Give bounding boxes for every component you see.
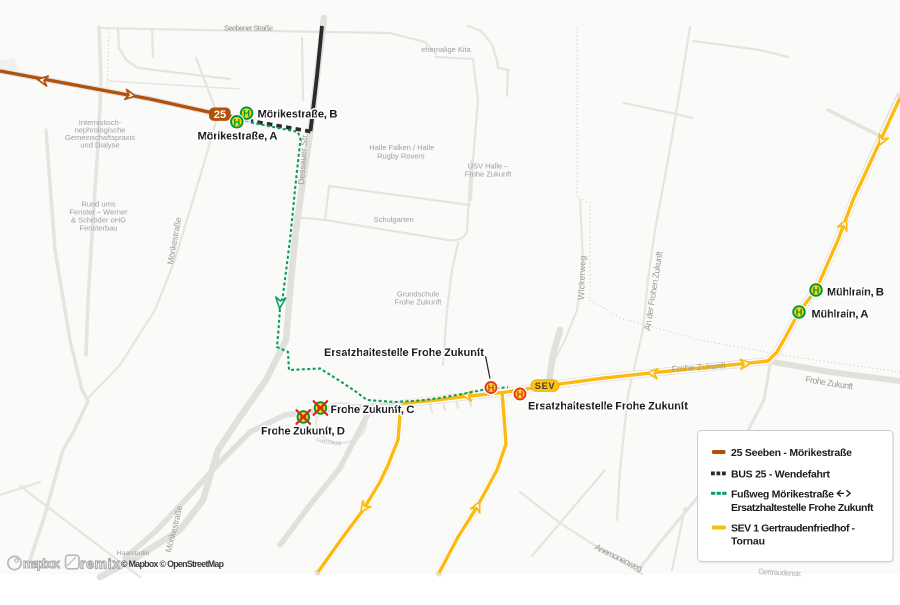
svg-text:Wickerweg: Wickerweg xyxy=(576,256,588,301)
svg-text:H: H xyxy=(813,286,820,297)
svg-text:SEV: SEV xyxy=(535,381,556,391)
svg-text:© Mapbox © OpenStreetMap: © Mapbox © OpenStreetMap xyxy=(121,559,225,569)
svg-text:25: 25 xyxy=(214,109,226,121)
svg-text:remix: remix xyxy=(80,556,120,572)
svg-text:25 Seeben - Mörikestraße: 25 Seeben - Mörikestraße xyxy=(731,447,852,459)
svg-text:Tornau: Tornau xyxy=(731,536,765,548)
svg-text:Mühlrain, A: Mühlrain, A xyxy=(812,309,869,321)
svg-text:Mörikestraße, A: Mörikestraße, A xyxy=(198,131,278,143)
svg-text:Ersatzhaltestelle Frohe Zukunf: Ersatzhaltestelle Frohe Zukunft xyxy=(324,347,484,359)
svg-text:Seebener Straße: Seebener Straße xyxy=(224,24,273,33)
svg-text:BUS 25 - Wendefahrt: BUS 25 - Wendefahrt xyxy=(731,468,831,480)
svg-text:Frohe Zukunft, D: Frohe Zukunft, D xyxy=(261,426,345,438)
svg-text:Mörikestraße, B: Mörikestraße, B xyxy=(258,109,338,121)
svg-text:Ersatzhaltestelle Frohe Zukunf: Ersatzhaltestelle Frohe Zukunft xyxy=(731,502,874,514)
svg-text:Fußweg Mörikestraße: Fußweg Mörikestraße xyxy=(731,488,834,500)
svg-text:mapbox: mapbox xyxy=(23,557,60,571)
svg-text:und Dialyse: und Dialyse xyxy=(80,140,119,149)
svg-text:Frohe Zukunft: Frohe Zukunft xyxy=(465,169,513,178)
svg-text:H: H xyxy=(517,390,524,400)
svg-text:H: H xyxy=(243,109,250,120)
svg-text:Mühlrain, B: Mühlrain, B xyxy=(827,287,884,299)
svg-text:H: H xyxy=(233,117,240,128)
svg-text:SEV 1 Gertraudenfriedhof -: SEV 1 Gertraudenfriedhof - xyxy=(731,523,856,535)
svg-text:Fensterbau: Fensterbau xyxy=(80,224,118,233)
svg-text:ehemalige Kita: ehemalige Kita xyxy=(421,45,471,54)
svg-text:Haarstudio: Haarstudio xyxy=(117,550,150,557)
svg-text:Frohe Zukunft, C: Frohe Zukunft, C xyxy=(331,404,415,416)
svg-text:Schulgarten: Schulgarten xyxy=(374,215,414,224)
svg-text:Frohe Zukunft: Frohe Zukunft xyxy=(395,297,443,306)
svg-text:Rugby Rovers: Rugby Rovers xyxy=(377,152,425,161)
svg-text:H: H xyxy=(488,383,495,393)
svg-text:H: H xyxy=(796,308,803,319)
svg-text:Ersatzhaltestelle Frohe Zukunf: Ersatzhaltestelle Frohe Zukunft xyxy=(528,401,688,413)
